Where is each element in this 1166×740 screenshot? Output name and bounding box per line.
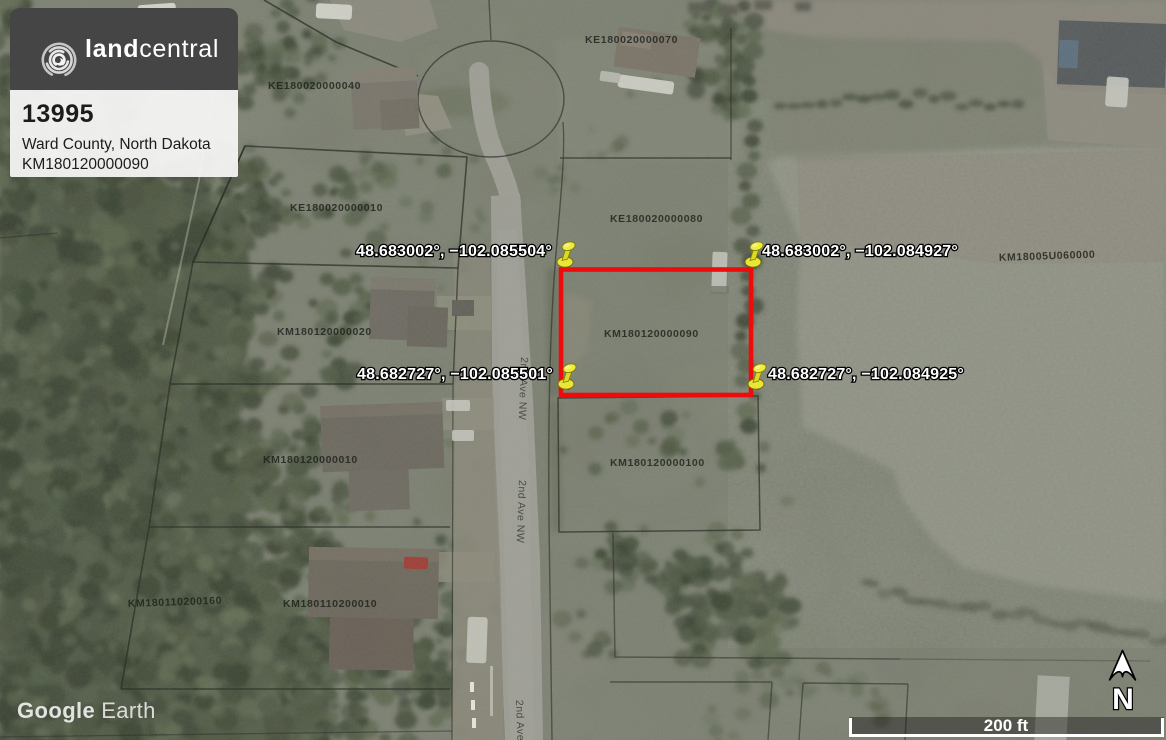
svg-text:N: N [1112,683,1134,716]
svg-text:48.683002°, −102.085504°: 48.683002°, −102.085504° [356,243,552,260]
svg-text:48.682727°, −102.084925°: 48.682727°, −102.084925° [768,366,964,383]
svg-text:KM180120000090: KM180120000090 [604,328,699,340]
svg-text:2nd Ave NW: 2nd Ave NW [514,480,528,544]
svg-text:2nd Ave NW: 2nd Ave NW [513,700,527,740]
svg-text:KE180020000010: KE180020000010 [290,202,383,214]
svg-text:KM180120000020: KM180120000020 [277,326,372,338]
svg-text:GoogleEarth: GoogleEarth [17,698,156,723]
svg-text:48.683002°, −102.084927°: 48.683002°, −102.084927° [762,243,958,260]
svg-text:KM180120000010: KM180120000010 [263,454,358,466]
svg-text:KM180110200010: KM180110200010 [283,598,377,610]
svg-text:KE180020000070: KE180020000070 [585,34,678,46]
svg-text:KM180120000100: KM180120000100 [610,457,705,469]
svg-text:KE180020000040: KE180020000040 [268,80,361,92]
svg-text:200 ft: 200 ft [984,716,1029,735]
svg-text:KE180020000080: KE180020000080 [610,213,703,225]
svg-text:48.682727°, −102.085501°: 48.682727°, −102.085501° [357,366,553,383]
